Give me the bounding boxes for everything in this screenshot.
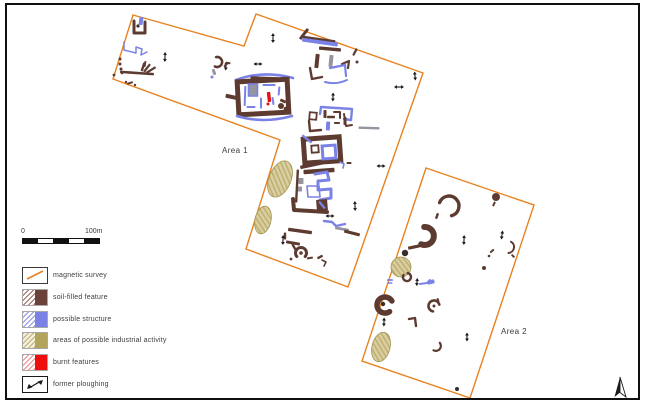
- feature-brown-curve: [509, 242, 515, 253]
- plough-arrow: [163, 52, 167, 62]
- legend-item-industrial-activity: areas of possible industrial activity: [22, 332, 167, 349]
- feature-brown-dot: [290, 258, 293, 261]
- feature-brown-line: [309, 121, 321, 131]
- feature-brown-bar: [127, 81, 133, 85]
- feature-brown-dot: [134, 84, 136, 86]
- feature-brown-enclosure: [309, 112, 317, 120]
- north-arrow-icon: [615, 377, 627, 397]
- plough-arrow: [462, 235, 466, 245]
- plough-arrow: [465, 333, 469, 342]
- feature-blue-bar: [263, 84, 276, 86]
- burnt-features-swatch: [22, 354, 48, 371]
- possible-structure-swatch: [22, 311, 48, 328]
- feature-brown-bar: [492, 201, 496, 206]
- feature-brown-dot: [299, 251, 303, 255]
- feature-brown-curve: [421, 227, 434, 245]
- legend-label: magnetic survey: [53, 272, 107, 279]
- industrial-activity-swatch: [22, 332, 48, 349]
- legend-label: former ploughing: [53, 381, 109, 388]
- magnetic-survey-swatch: [22, 267, 48, 284]
- scale-segment: [53, 239, 68, 243]
- feature-brown-bar: [435, 213, 439, 219]
- legend-label: burnt features: [53, 359, 99, 366]
- feature-brown-dot: [284, 107, 289, 112]
- feature-blue-bar: [326, 121, 330, 130]
- feature-red-dot: [267, 103, 270, 106]
- feature-brown-bar: [324, 110, 327, 118]
- feature-brown-bar: [319, 46, 341, 51]
- feature-grey-bar: [358, 126, 379, 129]
- survey-area-2-label: Area 2: [501, 327, 527, 336]
- plough-arrow: [353, 201, 357, 211]
- legend-item-burnt-features: burnt features: [22, 354, 167, 371]
- feature-blue-bar: [244, 86, 247, 106]
- plough-arrow: [382, 317, 386, 326]
- scale-segment: [23, 239, 38, 243]
- feature-brown-line: [310, 68, 322, 79]
- feature-industrial-area: [252, 205, 273, 236]
- former-ploughing-swatch: [22, 376, 48, 393]
- feature-brown-curve: [215, 57, 222, 67]
- plough-arrow: [377, 164, 386, 168]
- legend-item-soil-filled-feature: soil-filled feature: [22, 289, 167, 306]
- feature-brown-bar: [334, 122, 340, 124]
- magnetic-survey-line-icon: [23, 268, 47, 283]
- plough-arrow: [394, 85, 404, 89]
- feature-brown-line: [322, 260, 326, 266]
- scale-segment: [69, 239, 84, 243]
- feature-grey-bar: [249, 84, 258, 96]
- feature-brown-dot: [125, 81, 127, 83]
- feature-brown-bar: [408, 244, 420, 250]
- legend: magnetic survey soil-filled feature poss…: [22, 267, 167, 398]
- legend-label: areas of possible industrial activity: [53, 337, 167, 344]
- survey-area-1-outline: [113, 14, 423, 287]
- plough-arrow: [499, 230, 504, 239]
- feature-dark-dot: [455, 387, 459, 391]
- feature-blue-line: [124, 42, 147, 55]
- legend-label: possible structure: [53, 316, 111, 323]
- feature-blue-bar: [387, 279, 393, 281]
- scale-segment: [38, 239, 53, 243]
- feature-brown-bar: [489, 249, 494, 254]
- feature-brown-line: [409, 318, 416, 326]
- feature-blue-bar: [138, 17, 143, 25]
- feature-blue-bar: [247, 106, 256, 108]
- scale-segment: [84, 239, 99, 243]
- feature-brown-dot: [224, 65, 227, 68]
- feature-brown-bar: [288, 228, 312, 235]
- feature-brown-bar: [307, 256, 313, 259]
- plough-arrow: [415, 278, 419, 286]
- feature-blue-line: [324, 221, 345, 226]
- feature-blue-bar: [271, 97, 274, 105]
- feature-brown-bar: [344, 230, 360, 237]
- legend-label: soil-filled feature: [53, 294, 108, 301]
- feature-brown-dot: [120, 68, 123, 71]
- feature-brown-dot: [119, 63, 122, 66]
- plough-arrow: [326, 214, 335, 218]
- plough-arrow: [254, 62, 263, 66]
- plough-arrow: [271, 33, 275, 43]
- feature-grey-bar: [212, 69, 217, 76]
- soil-filled-feature-swatch: [22, 289, 48, 306]
- feature-blue-dot: [211, 76, 214, 79]
- plough-arrow: [413, 71, 418, 80]
- feature-brown-dot: [482, 266, 486, 270]
- legend-item-magnetic-survey: magnetic survey: [22, 267, 167, 284]
- feature-brown-bar: [284, 233, 286, 240]
- feature-grey-bar: [298, 187, 302, 192]
- plough-arrow-icon: [23, 377, 47, 392]
- feature-brown-bar: [317, 255, 323, 260]
- survey-area-1-label: Area 1: [222, 146, 248, 155]
- feature-brown-enclosure: [311, 145, 318, 152]
- feature-dark-dot: [402, 250, 408, 256]
- feature-brown-dot: [356, 61, 359, 64]
- feature-grey-bar: [328, 55, 333, 67]
- feature-brown-bar: [347, 162, 352, 164]
- feature-industrial-area: [369, 330, 394, 363]
- feature-brown-curve: [434, 343, 441, 351]
- scale-start-label: 0: [21, 228, 25, 235]
- plough-arrow: [331, 92, 335, 101]
- feature-brown-dot: [433, 305, 436, 308]
- feature-brown-bar: [511, 254, 515, 258]
- feature-brown-bar: [314, 54, 319, 68]
- legend-item-possible-structure: possible structure: [22, 311, 167, 328]
- feature-brown-dot: [113, 74, 116, 77]
- feature-blue-arc: [325, 80, 347, 83]
- feature-brown-bar: [295, 169, 299, 202]
- scale-end-label: 100m: [85, 228, 103, 235]
- feature-brown-dot: [488, 255, 491, 258]
- feature-brown-bar: [280, 98, 287, 103]
- survey-plan-page: Area 1Area 2 0 100m magnetic survey soil…: [0, 0, 646, 407]
- feature-brown-bar: [327, 116, 335, 118]
- legend-item-former-ploughing: former ploughing: [22, 376, 167, 393]
- feature-brown-dot: [119, 58, 122, 61]
- feature-dark-dot: [136, 24, 139, 27]
- feature-brown-dot: [492, 193, 500, 201]
- feature-blue-bar: [388, 282, 393, 284]
- scale-bar: [22, 238, 100, 244]
- feature-grey-bar: [299, 178, 304, 184]
- feature-blue-line: [330, 65, 346, 76]
- feature-brown-dot: [278, 103, 284, 109]
- feature-dark-dot: [381, 302, 385, 306]
- feature-blue-bar: [427, 279, 435, 285]
- feature-blue-bar: [278, 86, 281, 95]
- feature-blue-enclosure: [322, 145, 336, 159]
- feature-blue-bar: [260, 98, 262, 109]
- feature-blue-line: [340, 162, 344, 168]
- feature-red-bar: [267, 92, 271, 102]
- feature-brown-curve: [440, 196, 459, 216]
